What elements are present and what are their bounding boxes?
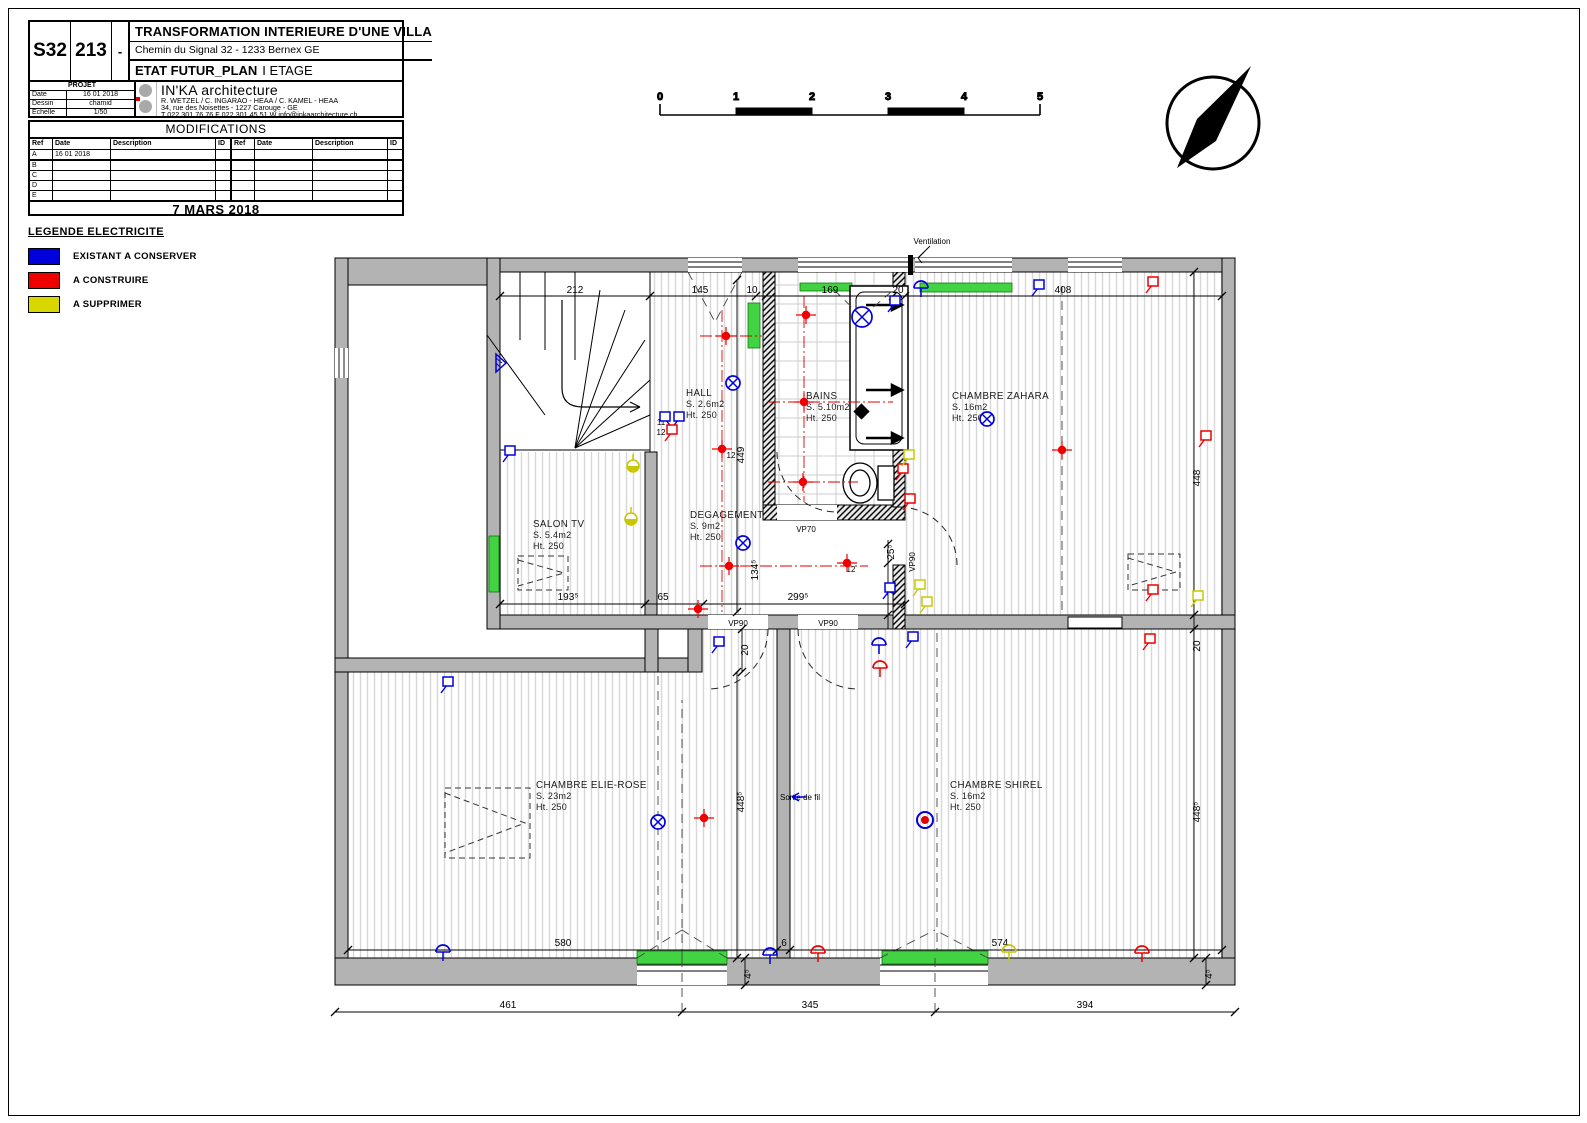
symbol-number: 12 — [727, 451, 736, 460]
dim-label: 145 — [692, 285, 709, 296]
dim-label: 65 — [657, 592, 669, 603]
dim-label: 345 — [802, 1000, 819, 1011]
symbol-number: 12 — [657, 428, 666, 437]
dim-label: 448⁵ — [736, 792, 747, 813]
rect — [885, 583, 895, 592]
room-area: S. 23m2 — [536, 791, 572, 801]
toilet — [843, 463, 894, 503]
symbol-lamp — [651, 815, 665, 829]
dim-label: 574 — [992, 938, 1009, 949]
room-area: S. 9m2 — [690, 521, 720, 531]
rect — [1148, 277, 1158, 286]
scale-number: 5 — [1037, 91, 1043, 103]
rect — [1201, 431, 1211, 440]
symbol-lamp — [726, 376, 740, 390]
dim-label: 299⁵ — [788, 592, 809, 603]
dim-label: 212 — [567, 285, 584, 296]
scale-number: 2 — [809, 91, 815, 103]
room-height: Ht. 250 — [686, 410, 717, 420]
dim-label: 6 — [781, 938, 787, 949]
room-name: CHAMBRE ZAHARA — [952, 391, 1049, 402]
annotation: VP90 — [818, 619, 838, 628]
room-height: Ht. 250 — [952, 413, 983, 423]
dim-label: 20 — [740, 644, 751, 656]
scale-number: 3 — [885, 91, 891, 103]
annotation: VP90 — [728, 619, 748, 628]
symbol-lamp — [980, 412, 994, 426]
room-height: Ht. 250 — [806, 413, 837, 423]
dim-label: 4⁵ — [1204, 969, 1215, 979]
room-name: DEGAGEMENT — [690, 510, 764, 521]
rect — [1148, 585, 1158, 594]
dim-label: 4⁵ — [743, 969, 754, 979]
room-height: Ht. 250 — [690, 532, 721, 542]
rect — [922, 597, 932, 606]
room-height: Ht. 250 — [950, 802, 981, 812]
room-area: S. 5.4m2 — [533, 530, 571, 540]
dim-label: 20 — [1192, 640, 1203, 652]
dim-label: 134⁵ — [750, 560, 761, 581]
rect — [890, 296, 900, 305]
rect — [915, 580, 925, 589]
room-height: Ht. 250 — [533, 541, 564, 551]
scale-number: 4 — [961, 91, 968, 103]
annotation: VP90 — [908, 552, 917, 572]
dim-label: 10 — [746, 285, 758, 296]
dim-label: 25⁵ — [886, 544, 897, 559]
rect — [1145, 634, 1155, 643]
dim-label: 448⁵ — [1192, 802, 1203, 823]
rect — [505, 446, 515, 455]
symbol-lamp — [852, 307, 872, 327]
floor-plan-svg: 012345 — [0, 0, 1587, 1123]
room-name: CHAMBRE ELIE-ROSE — [536, 780, 647, 791]
room-name: CHAMBRE SHIREL — [950, 780, 1043, 791]
room-area: S. 16m2 — [950, 791, 986, 801]
room-area: S. 16m2 — [952, 402, 988, 412]
rect — [904, 450, 914, 459]
rect — [674, 412, 684, 421]
scale-number: 1 — [733, 91, 739, 103]
room-height: Ht. 250 — [536, 802, 567, 812]
annotation: Ventilation — [914, 237, 951, 246]
symbol-lamp — [736, 536, 750, 550]
north-arrow-icon — [1167, 66, 1259, 169]
room-name: BAINS — [806, 391, 837, 402]
room-name: HALL — [686, 388, 712, 399]
scale-number: 0 — [657, 91, 663, 103]
dim-label: 408 — [1055, 285, 1072, 296]
room-name: SALON TV — [533, 519, 585, 530]
annotation: VP70 — [796, 525, 816, 534]
dim-label: 448 — [1192, 469, 1203, 486]
rect — [667, 425, 677, 434]
rect — [908, 632, 918, 641]
scale-bar: 012345 — [657, 91, 1043, 115]
rect — [905, 494, 915, 503]
dim-label: 580 — [555, 938, 572, 949]
dim-label: 193⁵ — [558, 592, 579, 603]
dim-label: 449 — [736, 446, 747, 463]
rect — [1193, 591, 1203, 600]
room-area: S. 5.10m2 — [806, 402, 850, 412]
rect — [714, 637, 724, 646]
dim-label: 20 — [892, 285, 904, 296]
rect — [660, 412, 670, 421]
circle — [921, 816, 929, 824]
rect — [443, 677, 453, 686]
rect — [1034, 280, 1044, 289]
dim-label: 461 — [500, 1000, 517, 1011]
staircase — [487, 272, 650, 452]
dim-label: 169 — [822, 285, 839, 296]
dim-label: 394 — [1077, 1000, 1094, 1011]
room-area: S. 2.6m2 — [686, 399, 724, 409]
